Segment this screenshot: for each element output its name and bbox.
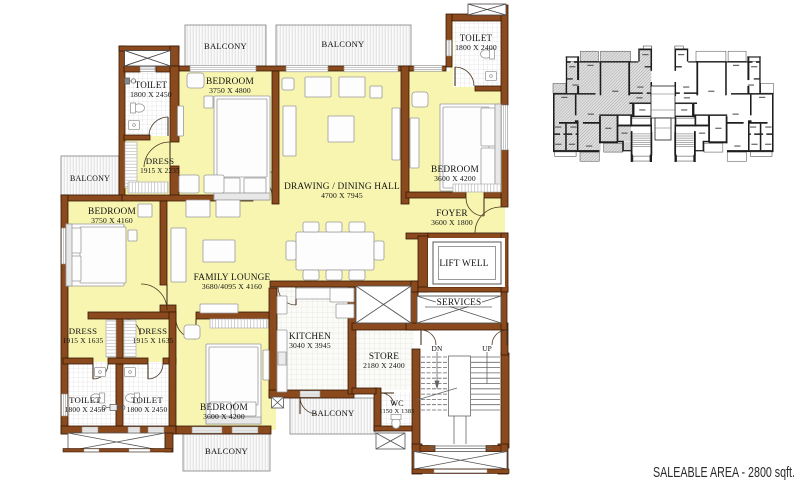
svg-text:DRESS: DRESS: [69, 326, 97, 336]
svg-text:1915 X 1635: 1915 X 1635: [63, 336, 104, 345]
svg-text:BALCONY: BALCONY: [205, 446, 248, 456]
svg-text:BALCONY: BALCONY: [70, 174, 110, 183]
svg-text:DN: DN: [431, 344, 443, 353]
svg-text:2180 X 2400: 2180 X 2400: [363, 361, 405, 370]
svg-text:3750 X 4160: 3750 X 4160: [91, 216, 133, 225]
svg-text:SALEABLE AREA - 2800 sqft.: SALEABLE AREA - 2800 sqft.: [653, 464, 795, 481]
svg-text:DRESS: DRESS: [146, 156, 174, 166]
svg-text:TOILET: TOILET: [69, 395, 101, 405]
svg-text:4700 X 7945: 4700 X 7945: [321, 191, 363, 200]
svg-text:1150 X 1385: 1150 X 1385: [379, 408, 414, 415]
svg-text:BALCONY: BALCONY: [312, 408, 355, 418]
svg-text:1800 X 2450: 1800 X 2450: [127, 405, 168, 414]
svg-text:DRESS: DRESS: [139, 326, 167, 336]
svg-text:1915 X 2235: 1915 X 2235: [140, 167, 180, 175]
svg-text:BALCONY: BALCONY: [204, 41, 247, 51]
svg-text:3750 X 4800: 3750 X 4800: [209, 86, 251, 95]
svg-text:3600 X 1800: 3600 X 1800: [431, 218, 473, 227]
svg-text:UP: UP: [482, 344, 492, 353]
svg-text:TOILET: TOILET: [131, 395, 163, 405]
svg-text:3600 X 4200: 3600 X 4200: [203, 412, 245, 421]
svg-text:3040 X 3945: 3040 X 3945: [289, 341, 331, 350]
svg-text:1800 X 2450: 1800 X 2450: [65, 405, 106, 414]
svg-text:TOILET: TOILET: [460, 33, 493, 43]
svg-text:1800 X 2450: 1800 X 2450: [130, 90, 172, 99]
svg-text:1800 X 2400: 1800 X 2400: [455, 43, 497, 52]
svg-text:SERVICES: SERVICES: [437, 298, 482, 308]
svg-text:1915 X 1635: 1915 X 1635: [133, 336, 174, 345]
svg-text:LIFT WELL: LIFT WELL: [439, 259, 488, 269]
svg-text:BALCONY: BALCONY: [322, 39, 365, 49]
svg-text:WC: WC: [390, 399, 404, 408]
svg-text:3600 X 4200: 3600 X 4200: [434, 174, 476, 183]
svg-text:TOILET: TOILET: [135, 80, 168, 90]
svg-text:3680/4095 X 4160: 3680/4095 X 4160: [202, 282, 262, 291]
